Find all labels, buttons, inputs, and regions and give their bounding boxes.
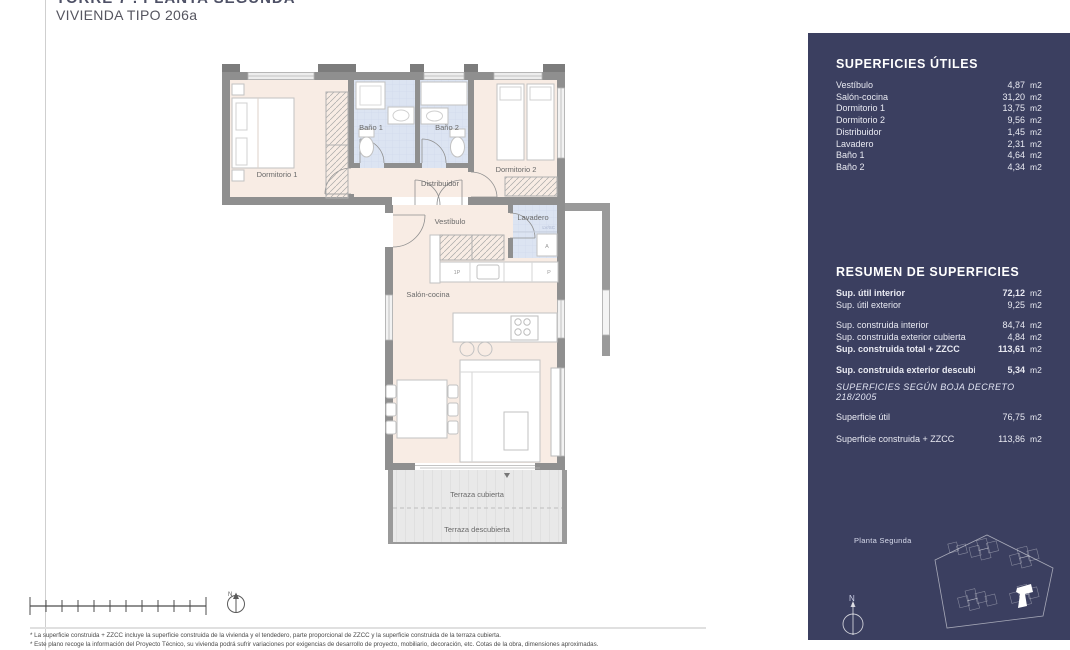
area-unit: m2 [1030, 365, 1048, 377]
area-value: 1,45 [975, 127, 1025, 139]
area-unit: m2 [1030, 344, 1048, 356]
label-bano-1: Baño 1 [359, 123, 383, 132]
area-row: Distribuidor1,45m2 [836, 127, 1048, 139]
area-unit: m2 [1030, 92, 1048, 104]
area-label: Superficie útil [836, 412, 975, 424]
area-unit: m2 [1030, 288, 1048, 300]
section-title: SUPERFICIES SEGÚN BOJA DECRETO 218/2005 [836, 382, 1048, 402]
sidebar-compass-north-label: N [849, 594, 855, 603]
area-label: Baño 2 [836, 162, 975, 174]
area-label: Sup. construida interior [836, 320, 975, 332]
area-value: 9,56 [975, 115, 1025, 127]
area-row: Vestíbulo4,87m2 [836, 80, 1048, 92]
area-label: Sup. construida exterior descubierta [836, 365, 975, 377]
plan-sheet: TORRE 7 . PLANTA SEGUNDA VIVIENDA TIPO 2… [0, 0, 1070, 650]
area-unit: m2 [1030, 139, 1048, 151]
area-row: Dormitorio 113,75m2 [836, 103, 1048, 115]
label-distribuidor: Distribuidor [421, 179, 459, 188]
section-title: SUPERFICIES ÚTILES [836, 57, 1048, 71]
label-lavadero: Lavadero [517, 213, 548, 222]
area-label: Dormitorio 1 [836, 103, 975, 115]
area-label: Sup. construida total + ZZCC [836, 344, 975, 356]
compass-north-label: N [228, 592, 232, 598]
area-row: Baño 24,34m2 [836, 162, 1048, 174]
area-row: Lavadero2,31m2 [836, 139, 1048, 151]
area-label: Sup. útil interior [836, 288, 975, 300]
area-unit: m2 [1030, 320, 1048, 332]
area-unit: m2 [1030, 150, 1048, 162]
area-row: Sup. útil exterior9,25m2 [836, 300, 1048, 312]
area-unit: m2 [1030, 127, 1048, 139]
area-label: Vestíbulo [836, 80, 975, 92]
area-label: Salón-cocina [836, 92, 975, 104]
label-salon-cocina: Salón-cocina [406, 290, 450, 299]
floor-level-label: Planta Segunda [854, 536, 912, 545]
area-unit: m2 [1030, 162, 1048, 174]
area-row: Sup. construida interior84,74m2 [836, 320, 1048, 332]
area-label: Lavadero [836, 139, 975, 151]
area-label: Superficie construida + ZZCC [836, 434, 975, 446]
area-row: Superficie útil76,75m2 [836, 412, 1048, 424]
section-resumen: RESUMEN DE SUPERFICIES Sup. útil interio… [836, 265, 1048, 376]
area-value: 4,87 [975, 80, 1025, 92]
compass-icon: N [228, 592, 245, 613]
label-appliance-a: A [545, 244, 549, 250]
label-lvsc: LV/SC [542, 225, 555, 230]
sidebar-compass-icon: N [838, 591, 872, 641]
area-label: Sup. construida exterior cubierta [836, 332, 975, 344]
area-label: Distribuidor [836, 127, 975, 139]
area-row: Dormitorio 29,56m2 [836, 115, 1048, 127]
label-dormitorio-2: Dormitorio 2 [496, 165, 537, 174]
area-row: Baño 14,64m2 [836, 150, 1048, 162]
highlighted-tower [1016, 584, 1033, 608]
area-row: Sup. construida exterior descubierta5,34… [836, 365, 1048, 377]
section-title: RESUMEN DE SUPERFICIES [836, 265, 1048, 279]
area-label: Dormitorio 2 [836, 115, 975, 127]
area-unit: m2 [1030, 300, 1048, 312]
area-unit: m2 [1030, 115, 1048, 127]
area-value: 9,25 [975, 300, 1025, 312]
area-value: 113,86 [975, 434, 1025, 446]
footnote-1: * La superficie construida + ZZCC incluy… [30, 632, 750, 639]
area-value: 113,61 [975, 344, 1025, 356]
footnote-2: * Este plano recoge la información del P… [30, 641, 750, 648]
area-value: 5,34 [975, 365, 1025, 377]
area-value: 13,75 [975, 103, 1025, 115]
area-unit: m2 [1030, 332, 1048, 344]
label-terraza-descubierta: Terraza descubierta [444, 525, 511, 534]
area-value: 76,75 [975, 412, 1025, 424]
area-label: Baño 1 [836, 150, 975, 162]
label-dormitorio-1: Dormitorio 1 [257, 170, 298, 179]
label-vestibulo: Vestíbulo [435, 217, 466, 226]
section-boja: SUPERFICIES SEGÚN BOJA DECRETO 218/2005 … [836, 382, 1048, 445]
area-value: 84,74 [975, 320, 1025, 332]
scale-bar [30, 597, 206, 615]
footer-divider [30, 627, 706, 629]
area-unit: m2 [1030, 434, 1048, 446]
section-superficies-utiles: SUPERFICIES ÚTILES Vestíbulo4,87m2 Salón… [836, 57, 1048, 174]
area-row: Sup. construida total + ZZCC113,61m2 [836, 344, 1048, 356]
label-bano-2: Baño 2 [435, 123, 459, 132]
area-unit: m2 [1030, 103, 1048, 115]
label-terraza-cubierta: Terraza cubierta [450, 490, 505, 499]
area-unit: m2 [1030, 412, 1048, 424]
area-row: Salón-cocina31,20m2 [836, 92, 1048, 104]
area-value: 4,84 [975, 332, 1025, 344]
area-value: 4,64 [975, 150, 1025, 162]
area-row: Sup. útil interior72,12m2 [836, 288, 1048, 300]
area-row: Superficie construida + ZZCC113,86m2 [836, 434, 1048, 446]
area-row: Sup. construida exterior cubierta4,84m2 [836, 332, 1048, 344]
area-unit: m2 [1030, 80, 1048, 92]
area-value: 4,34 [975, 162, 1025, 174]
area-label: Sup. útil exterior [836, 300, 975, 312]
area-value: 2,31 [975, 139, 1025, 151]
site-plan-key [927, 530, 1062, 635]
surface-summary-panel: SUPERFICIES ÚTILES Vestíbulo4,87m2 Salón… [808, 33, 1070, 640]
label-cabinet-1p: 1P [454, 270, 461, 276]
area-value: 72,12 [975, 288, 1025, 300]
area-value: 31,20 [975, 92, 1025, 104]
label-cabinet-p: P [547, 270, 551, 276]
